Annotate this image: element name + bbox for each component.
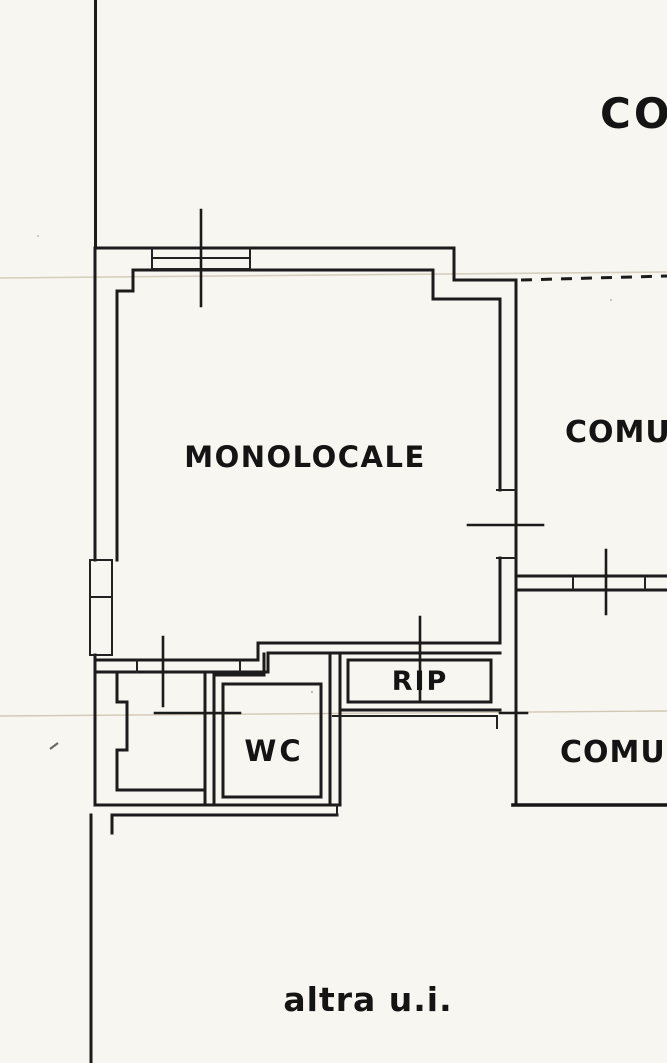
wc-walls bbox=[214, 654, 340, 805]
label-top-right-partial: CO bbox=[600, 89, 667, 138]
label-comune-lower: COMUN bbox=[560, 735, 667, 770]
window-left-wall bbox=[90, 560, 112, 655]
scan-artifact-lines bbox=[0, 272, 667, 716]
dashed-boundary-line bbox=[521, 276, 667, 280]
monolocale-outer-walls bbox=[95, 248, 516, 805]
floor-plan-page: CO MONOLOCALE COMUN RIP WC COMUN altra u… bbox=[0, 0, 667, 1063]
label-altra-ui: altra u.i. bbox=[283, 980, 452, 1019]
common-room-lower-walls bbox=[513, 576, 667, 805]
boundary-lines bbox=[91, 0, 667, 1063]
room-labels: CO MONOLOCALE COMUN RIP WC COMUN altra u… bbox=[184, 89, 667, 1019]
label-rip: RIP bbox=[392, 666, 449, 697]
label-wc: WC bbox=[244, 734, 303, 768]
floor-plan-canvas: CO MONOLOCALE COMUN RIP WC COMUN altra u… bbox=[0, 0, 667, 1063]
label-comune-upper: COMUN bbox=[565, 415, 667, 450]
label-monolocale: MONOLOCALE bbox=[184, 440, 426, 474]
